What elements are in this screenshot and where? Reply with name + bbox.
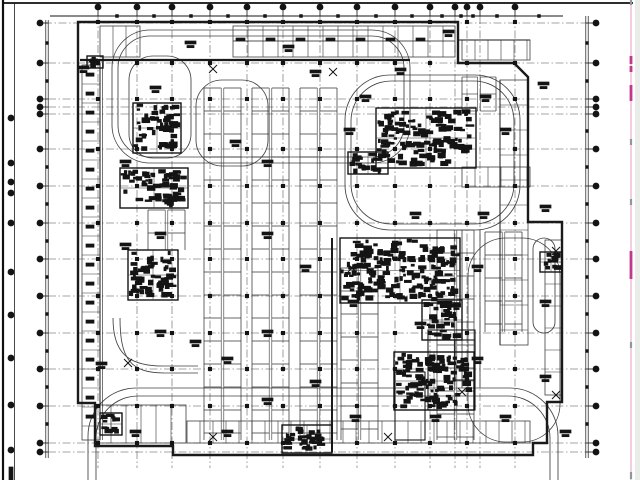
grid-bubble (37, 60, 44, 67)
grid-bubble (593, 20, 600, 27)
grid-bubble (593, 104, 600, 111)
grid-bubble (593, 293, 600, 300)
grid-bubble (392, 4, 399, 11)
grid-bubble (593, 403, 600, 410)
grid-bubble (37, 256, 44, 263)
grid-bubble (593, 449, 600, 456)
grid-bubble (593, 256, 600, 263)
grid-bubble (37, 111, 44, 118)
grid-bubble (593, 220, 600, 227)
grid-bubble (169, 4, 176, 11)
grid-bubble (477, 4, 484, 11)
grid-bubble (37, 293, 44, 300)
grid-bubble (37, 449, 44, 456)
grid-bubble (593, 60, 600, 67)
grid-bubble (8, 160, 15, 167)
grid-bubble (8, 220, 15, 227)
grid-bubble (8, 190, 15, 197)
grid-bubble (8, 355, 15, 362)
grid-bubble (280, 4, 287, 11)
grid-bubble (427, 4, 434, 11)
grid-bubble (593, 440, 600, 447)
grid-bubble (593, 183, 600, 190)
grid-bubble (593, 366, 600, 373)
grid-bubble (37, 366, 44, 373)
grid-bubble (593, 146, 600, 153)
grid-bubble (317, 4, 324, 11)
grid-bubble (593, 111, 600, 118)
grid-bubble (512, 4, 519, 11)
grid-bubble (452, 4, 459, 11)
cad-sheet (0, 0, 640, 480)
grid-bubble (593, 96, 600, 103)
grid-bubble (8, 402, 15, 409)
floor-plan-svg (0, 0, 640, 480)
grid-bubble (37, 403, 44, 410)
grid-bubble (8, 179, 15, 186)
grid-bubble (37, 183, 44, 190)
grid-bubble (8, 447, 15, 454)
grid-bubble (8, 312, 15, 319)
grid-bubble (37, 440, 44, 447)
grid-bubble (37, 220, 44, 227)
grid-bubble (464, 4, 471, 11)
grid-bubble (354, 4, 361, 11)
grid-bubble (37, 104, 44, 111)
grid-bubble (593, 330, 600, 337)
grid-bubble (95, 4, 102, 11)
grid-bubble (37, 20, 44, 27)
grid-bubble (207, 4, 214, 11)
grid-bubble (134, 4, 141, 11)
grid-bubble (244, 4, 251, 11)
grid-bubble (8, 269, 15, 276)
grid-bubble (37, 96, 44, 103)
grid-bubble (37, 146, 44, 153)
grid-bubble (8, 115, 15, 122)
grid-bubble (37, 330, 44, 337)
